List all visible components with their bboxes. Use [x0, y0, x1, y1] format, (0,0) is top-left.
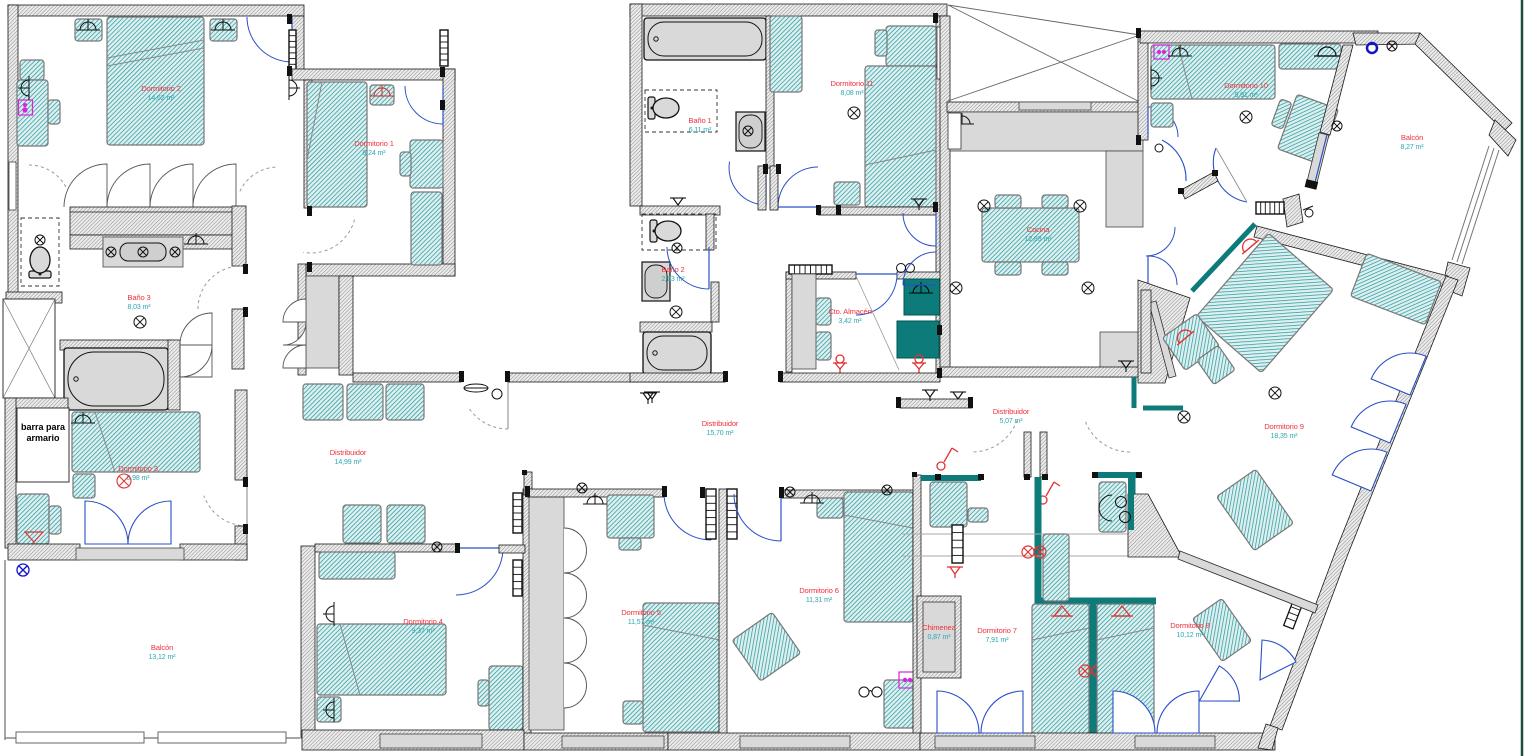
- svg-text:8,08 m²: 8,08 m²: [840, 90, 864, 97]
- svg-text:6,11 m²: 6,11 m²: [689, 127, 712, 134]
- svg-text:Baño 1: Baño 1: [688, 116, 711, 125]
- svg-text:11,57 m²: 11,57 m²: [628, 619, 655, 626]
- svg-text:8,03 m²: 8,03 m²: [127, 304, 151, 311]
- svg-text:Dormitorio 1: Dormitorio 1: [354, 139, 394, 148]
- svg-text:Dormitorio 9: Dormitorio 9: [1264, 422, 1304, 431]
- svg-text:18,35 m²: 18,35 m²: [1271, 433, 1299, 440]
- svg-text:14,99 m²: 14,99 m²: [335, 459, 363, 466]
- svg-text:9,37 m²: 9,37 m²: [411, 628, 435, 635]
- svg-text:0,87 m²: 0,87 m²: [927, 634, 951, 641]
- svg-text:8,27 m²: 8,27 m²: [1400, 144, 1424, 151]
- svg-text:9,91 m²: 9,91 m²: [1234, 92, 1258, 99]
- svg-text:Balcón: Balcón: [1401, 133, 1423, 142]
- svg-text:Distribuidor: Distribuidor: [330, 448, 367, 457]
- svg-text:13,12 m²: 13,12 m²: [149, 654, 177, 661]
- svg-text:Dormitorio 2: Dormitorio 2: [141, 84, 181, 93]
- svg-text:barra para: barra para: [21, 422, 66, 432]
- svg-text:armario: armario: [26, 433, 60, 443]
- svg-text:3,42 m²: 3,42 m²: [838, 318, 862, 325]
- svg-text:Dormitorio 6: Dormitorio 6: [799, 586, 839, 595]
- svg-text:Dormitorio 10: Dormitorio 10: [1224, 81, 1268, 90]
- svg-text:Dormitorio 11: Dormitorio 11: [830, 79, 873, 88]
- svg-text:5,07 m²: 5,07 m²: [999, 418, 1023, 425]
- svg-text:7,91 m²: 7,91 m²: [985, 637, 1009, 644]
- svg-text:Dormitorio 3: Dormitorio 3: [118, 464, 158, 473]
- svg-text:Chimenea: Chimenea: [922, 623, 956, 632]
- svg-text:Dormitorio 5: Dormitorio 5: [621, 608, 661, 617]
- svg-text:11,31 m²: 11,31 m²: [806, 597, 833, 604]
- svg-text:6,24 m²: 6,24 m²: [362, 150, 386, 157]
- svg-text:10,12 m²: 10,12 m²: [1177, 632, 1205, 639]
- svg-text:15,70 m²: 15,70 m²: [707, 430, 735, 437]
- svg-text:Cocina: Cocina: [1027, 225, 1051, 234]
- svg-text:Dormitorio 7: Dormitorio 7: [977, 626, 1017, 635]
- svg-text:Baño 3: Baño 3: [127, 293, 150, 302]
- svg-text:Cto. Almacén: Cto. Almacén: [828, 307, 871, 316]
- svg-text:Distribuidor: Distribuidor: [702, 419, 739, 428]
- svg-text:Balcón: Balcón: [151, 643, 173, 652]
- svg-text:Distribuidor: Distribuidor: [993, 407, 1030, 416]
- svg-text:Dormitorio 8: Dormitorio 8: [1170, 621, 1210, 630]
- svg-text:12,83 m²: 12,83 m²: [1025, 236, 1053, 243]
- svg-text:Dormitorio 4: Dormitorio 4: [403, 617, 443, 626]
- svg-text:14,62 m²: 14,62 m²: [148, 95, 176, 102]
